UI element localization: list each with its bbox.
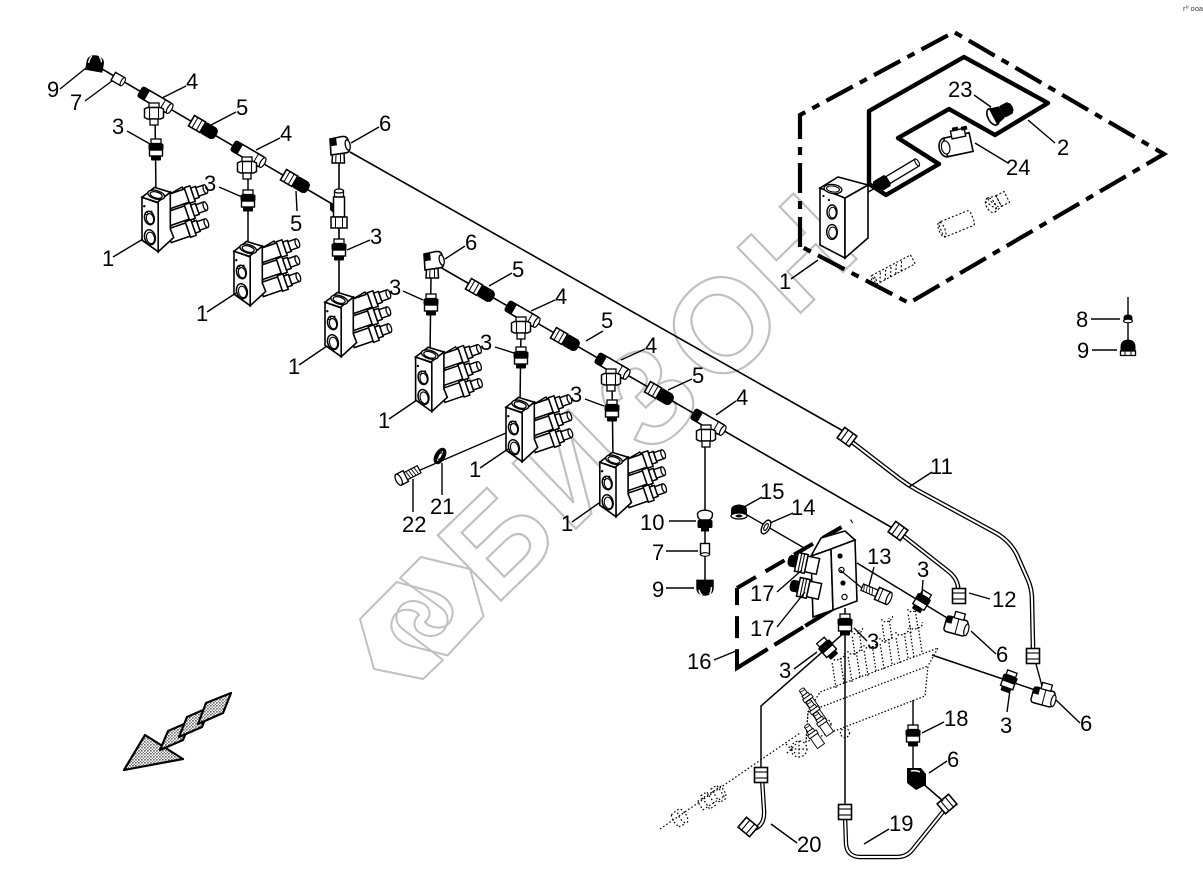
svg-text:18: 18 [944,706,968,731]
svg-text:1: 1 [779,269,791,294]
svg-text:4: 4 [645,333,657,358]
svg-text:16: 16 [687,649,711,674]
svg-text:3: 3 [389,275,401,300]
svg-text:гº ооа: гº ооа [1183,4,1203,13]
svg-text:19: 19 [889,811,913,836]
svg-text:6: 6 [996,642,1008,667]
svg-text:5: 5 [290,211,302,236]
svg-text:5: 5 [692,363,704,388]
svg-text:7: 7 [70,90,82,115]
svg-text:3: 3 [779,658,791,683]
svg-text:1: 1 [288,354,300,379]
svg-text:1: 1 [102,246,114,271]
svg-text:3: 3 [204,171,216,196]
svg-text:9: 9 [652,577,664,602]
svg-text:3: 3 [867,629,879,654]
svg-text:24: 24 [1006,155,1030,180]
svg-text:3: 3 [570,382,582,407]
svg-text:10: 10 [640,510,664,535]
svg-text:1: 1 [469,457,481,482]
svg-text:9: 9 [47,77,59,102]
svg-text:6: 6 [379,111,391,136]
svg-text:3: 3 [112,114,124,139]
svg-text:1: 1 [378,408,390,433]
svg-text:7: 7 [652,540,664,565]
svg-text:6: 6 [1080,711,1092,736]
svg-text:5: 5 [601,308,613,333]
svg-text:8: 8 [1076,307,1088,332]
svg-text:1: 1 [196,301,208,326]
svg-text:4: 4 [736,385,748,410]
svg-text:5: 5 [512,257,524,282]
svg-text:4: 4 [280,121,292,146]
svg-text:3: 3 [1000,713,1012,738]
svg-text:2: 2 [1057,135,1069,160]
svg-text:9: 9 [1077,338,1089,363]
svg-text:11: 11 [930,454,953,479]
svg-text:3: 3 [480,330,492,355]
svg-text:15: 15 [760,479,784,504]
svg-text:14: 14 [791,495,815,520]
svg-text:17: 17 [750,616,774,641]
svg-text:5: 5 [236,95,248,120]
svg-text:3: 3 [917,557,929,582]
svg-text:20: 20 [797,832,821,857]
svg-text:22: 22 [402,512,426,537]
svg-text:4: 4 [555,284,567,309]
svg-text:6: 6 [465,230,477,255]
svg-text:12: 12 [992,587,1016,612]
svg-text:17: 17 [750,581,774,606]
svg-text:6: 6 [947,747,959,772]
svg-text:4: 4 [186,69,198,94]
svg-text:1: 1 [561,511,573,536]
svg-text:21: 21 [430,494,454,519]
svg-text:3: 3 [370,224,382,249]
svg-text:23: 23 [948,77,972,102]
svg-text:13: 13 [867,544,891,569]
